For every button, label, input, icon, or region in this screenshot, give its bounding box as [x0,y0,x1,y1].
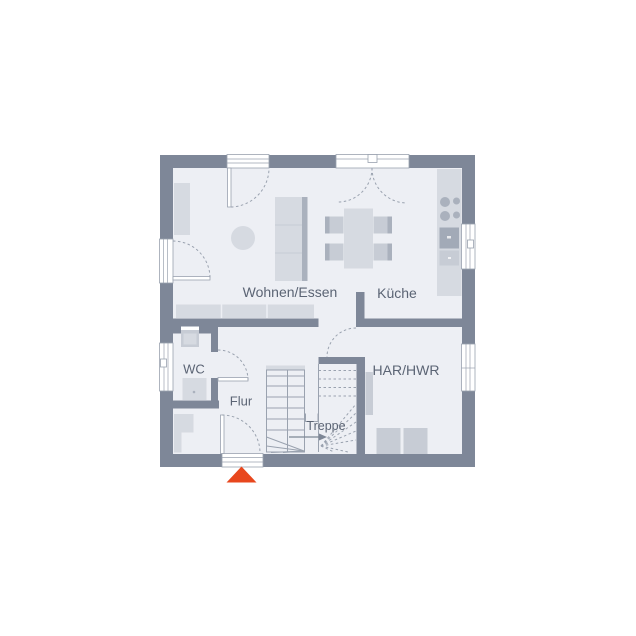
wardrobe [174,183,190,235]
utility-window [462,344,476,391]
dryer [404,428,428,454]
round-table [231,226,255,250]
sideboard [176,305,314,319]
wc-window [160,343,174,391]
utility-cabinet [366,372,374,415]
kitchen-window [462,224,476,269]
room-label-wc: WC [183,362,205,377]
room-label-wohnen-essen: Wohnen/Essen [243,284,338,300]
shelf-unit [275,197,308,281]
toilet [183,378,207,400]
room-label-flur: Flur [230,394,252,409]
kitchen-counter [437,169,462,296]
washer [377,428,401,454]
floor-plan: Wohnen/Essen Küche WC Flur Treppe HAR/HW… [0,0,636,636]
dining-table [344,209,373,269]
entrance-marker [227,467,257,483]
room-label-har-hwr: HAR/HWR [373,362,440,378]
room-label-kueche: Küche [377,285,417,301]
floor-plan-drawing [0,0,636,636]
room-label-treppe: Treppe [306,419,345,433]
